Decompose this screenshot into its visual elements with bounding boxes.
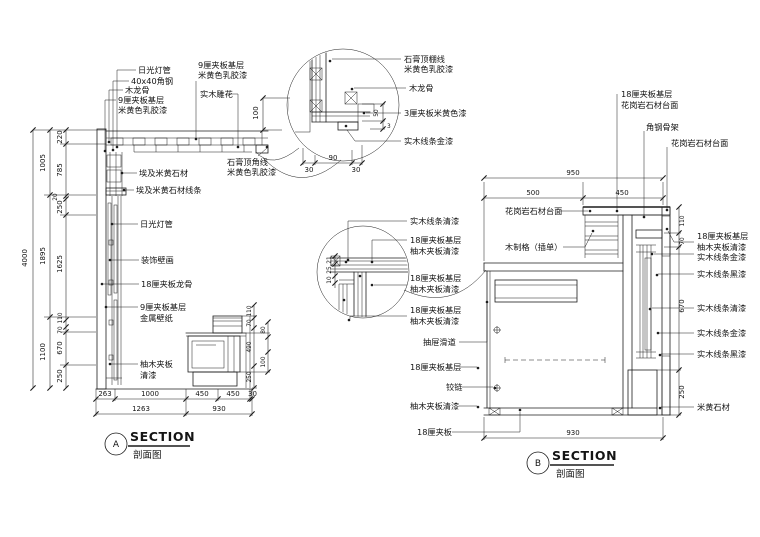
dim-b-right-0: 110 [680,215,686,226]
label-beige-latex-3: 米黄色乳胶漆 [227,167,276,177]
dim-a-cab-4: 100 [261,356,267,367]
label-drawer-slide: 抽屉滑道 [423,337,456,347]
dim-detail-a-100: 100 [252,106,260,119]
label-gypsum-corner: 石膏顶角线 [227,157,268,167]
dim-a-bottom1-1: 1000 [141,390,159,398]
label-plywood3-beige: 3厘夹板米黄色漆 [404,108,467,118]
label-egypt-stone: 埃及米黄石材 [139,168,188,178]
dim-a-cab-5: 250 [247,371,253,382]
label-teak-clear-b3: 柚木夹板清漆 [410,316,459,326]
label-ply18-b4: 18厘夹板基层 [410,362,461,372]
dim-a-inner-0: 220 [56,130,64,143]
dim-detail-a-30l: 30 [305,166,314,174]
dim-b-450: 450 [615,189,628,197]
label-varnish: 清漆 [140,370,156,380]
label-ply18-granite-1: 18厘夹板基层 [621,89,672,99]
dim-a-cab-2: 80 [261,326,267,334]
label-ply18-granite-2: 花岗岩石材台面 [621,100,678,110]
label-beige-latex-detail: 米黄色乳胶漆 [404,64,453,74]
label-beige-latex-1: 米黄色乳胶漆 [118,105,167,115]
label-fluorescent-mid: 日光灯管 [140,219,173,229]
label-angle-steel-frame: 角钢骨架 [646,122,679,132]
label-wood-keel: 木龙骨 [125,85,150,95]
label-ply18-b3: 18厘夹板基层 [410,305,461,315]
label-deco-mural: 装饰壁画 [141,255,174,265]
label-molding-gold-r1: 实木线条金漆 [697,252,746,262]
label-wood-carving: 实木雕花 [200,89,233,99]
dim-a-mid-0: 1005 [39,154,47,172]
dim-detail-b-1: 25 [327,266,333,274]
dim-detail-b-2: 10 [327,276,333,284]
label-ply18-b1: 18厘夹板基层 [410,235,461,245]
label-wood-slot: 木制格（插单） [505,242,562,252]
label-egypt-stone-trim: 埃及米黄石材线条 [136,185,202,195]
dim-a-cab-3: 490 [247,341,253,352]
label-hinge: 铰链 [446,382,462,392]
label-plywood18-keel: 18厘夹板龙骨 [141,279,192,289]
label-ply18-right: 18厘夹板基层 [697,231,748,241]
section-b-subtitle: 剖面图 [556,468,585,480]
dim-detail-b-0: 21 [327,256,333,264]
label-teak-clear-b2: 柚木夹板清漆 [410,284,459,294]
dim-b-right-2: 670 [678,299,686,312]
label-teak-clear-b1: 柚木夹板清漆 [410,246,459,256]
section-a-title-block: A SECTION 剖面图 [105,429,195,461]
label-fluorescent-top: 日光灯管 [138,65,171,75]
dim-a-inner-1: 785 [56,163,64,176]
label-gypsum-ceiling-line: 石膏顶棚线 [404,54,445,64]
label-teak-clear-b4: 柚木夹板清漆 [410,401,459,411]
label-metal-wallpaper: 金属壁纸 [140,313,173,323]
section-drawings-canvas: 4000 1005 1895 1100 220 785 20 250 1625 … [0,0,760,537]
label-molding-clear-r: 实木线条清漆 [697,303,746,313]
label-teak-plywood: 柚木夹板 [140,359,173,369]
dim-a-inner-2: 20 [53,193,59,201]
dim-detail-a-50: 50 [374,109,380,117]
granite-countertop [583,207,670,215]
hinge-glyph-top [493,326,501,334]
label-granite-top-left: 花岗岩石材台面 [505,206,562,216]
dim-a-bottom1-2: 450 [195,390,208,398]
dim-b-right-1: 70 [680,237,686,245]
dim-a-inner-3: 250 [56,200,64,213]
drawer-box [495,280,577,302]
dim-a-mid-1: 1895 [39,247,47,265]
dim-a-inner-4: 1625 [56,255,64,273]
label-molding-black-r1: 实木线条黑漆 [697,269,746,279]
bubble-b-letter: B [535,459,541,469]
dim-detail-a-90: 90 [329,154,338,162]
dim-a-inner-5: 110 [58,312,64,323]
dim-a-bottom1-0: 263 [98,390,111,398]
dim-b-right-3: 250 [678,385,686,398]
label-ply18-b2: 18厘夹板基层 [410,273,461,283]
label-molding-black-r2: 实木线条黑漆 [697,349,746,359]
dim-b-950: 950 [566,169,579,177]
section-a-title: SECTION [130,429,195,444]
beige-stone-strip [662,356,670,415]
dim-detail-a-30r: 30 [352,166,361,174]
bubble-a-letter: A [113,440,120,450]
dim-a-bottom2-1: 930 [212,405,225,413]
label-beige-latex-2: 米黄色乳胶漆 [198,70,247,80]
dim-a-mid-2: 1100 [39,343,47,361]
dim-b-500: 500 [526,189,539,197]
label-plywood9-2: 9厘夹板基层 [198,60,244,70]
label-plywood9-1: 9厘夹板基层 [118,95,164,105]
section-b-drawing [484,207,670,415]
label-wood-keel-detail: 木龙骨 [409,83,434,93]
label-molding-gold-detail: 实木线条金漆 [404,136,453,146]
label-teak-clear-right: 柚木夹板清漆 [697,242,746,252]
wall-hatch-a [97,129,106,389]
dim-a-bottom1-3: 450 [226,390,239,398]
label-beige-stone: 米黄石材 [697,402,730,412]
fluorescent-tube-glyph [108,203,111,295]
cad-sheet: 4000 1005 1895 1100 220 785 20 250 1625 … [0,0,760,537]
section-a-subtitle: 剖面图 [133,449,162,461]
label-plywood9-3: 9厘夹板基层 [140,302,186,312]
label-ply18-b5: 18厘夹板 [417,427,452,437]
label-granite-top-right: 花岗岩石材台面 [671,138,728,148]
cabinet-a [186,316,250,388]
detail-circle-a: 石膏顶棚线 米黄色乳胶漆 木龙骨 3厘夹板米黄色漆 实木线条金漆 100 50 … [252,49,467,178]
dim-a-inner-6: 70 [58,326,64,334]
section-b-title-block: B SECTION 剖面图 [527,448,617,480]
dim-a-total: 4000 [21,249,29,267]
dim-a-inner-8: 250 [56,369,64,382]
label-molding-gold-r2: 实木线条金漆 [697,328,746,338]
dim-a-bottom2-0: 1263 [132,405,150,413]
dim-b-930: 930 [566,429,579,437]
section-b-title: SECTION [552,448,617,463]
dim-a-inner-7: 670 [56,341,64,354]
label-molding-clear-b: 实木线条清漆 [410,216,459,226]
dim-detail-a-3: 3 [387,124,391,130]
